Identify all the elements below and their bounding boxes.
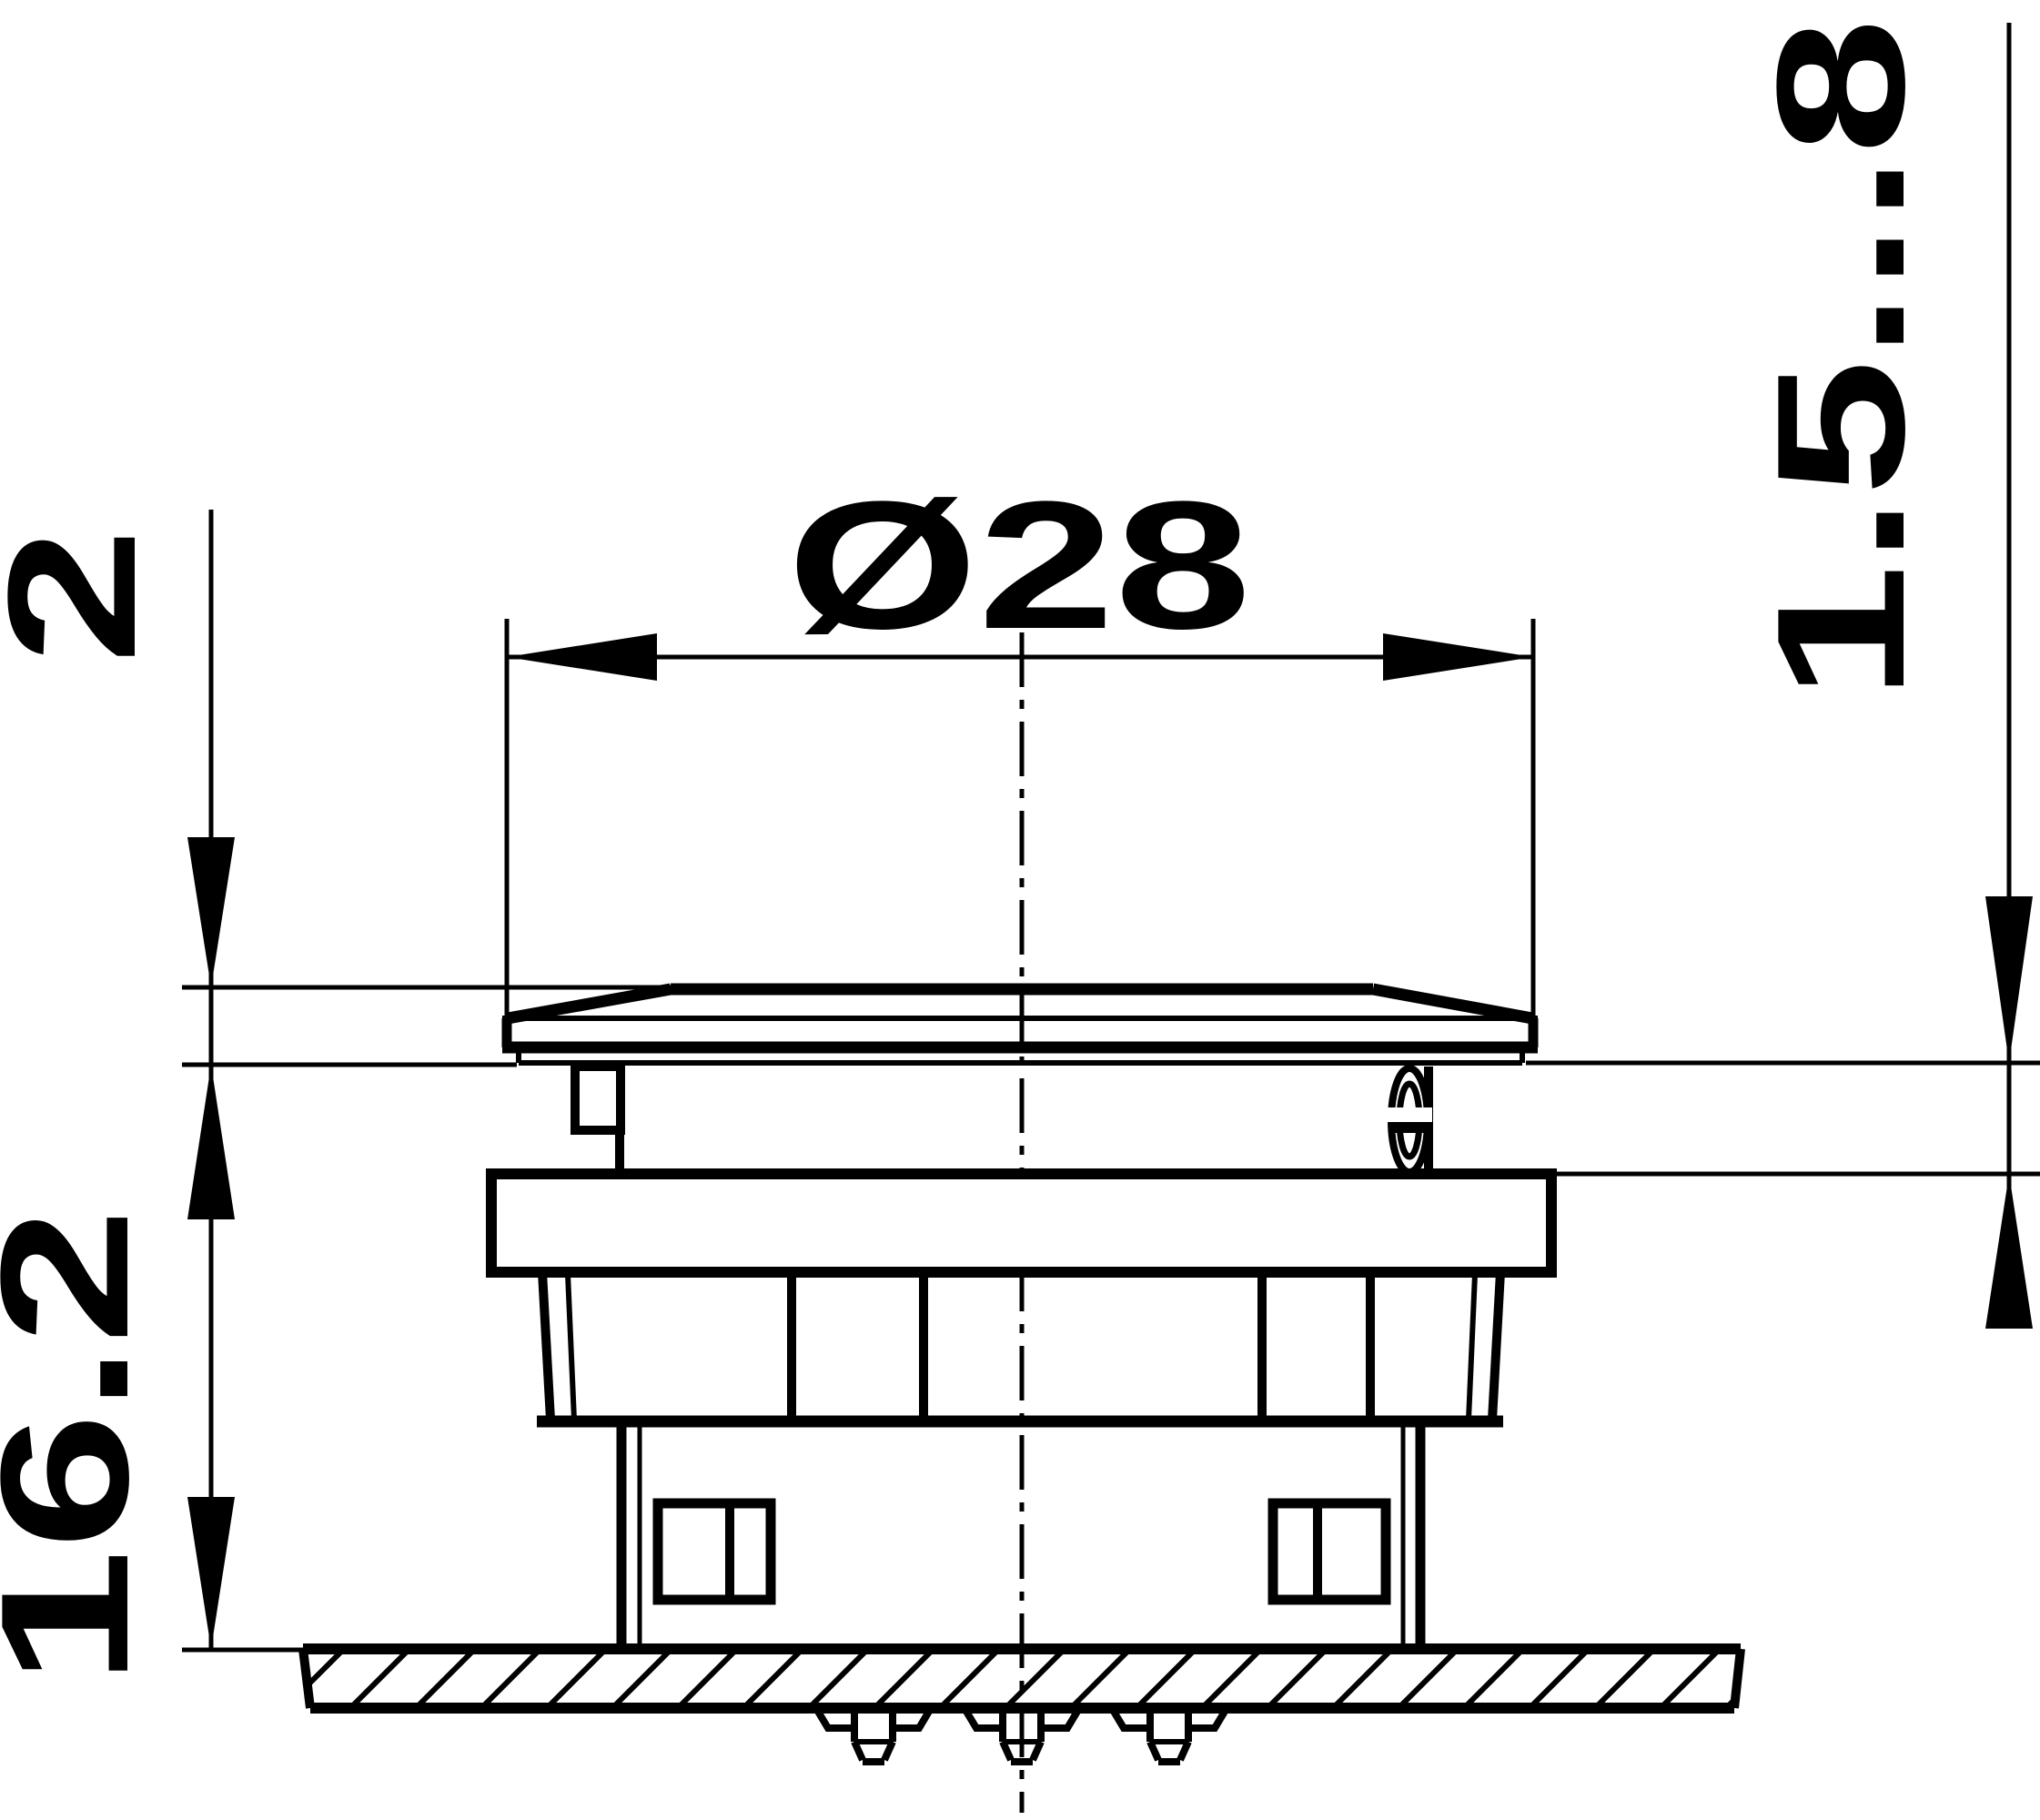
cap-top-slope-right [1373,989,1532,1018]
travel-label: 1.5...8 [1740,18,1943,702]
cap-height-arrow-top [187,837,235,987]
cap-height-label: 2 [0,528,174,664]
travel-arrow-bottom [1985,1174,2033,1329]
diameter-label: Ø28 [787,464,1251,667]
mounting-panel [273,1633,1801,1720]
spring-middle-winding [1389,1122,1429,1133]
contact-window-right [1273,1503,1386,1600]
spring-gap [1387,1107,1432,1122]
latch-tab [575,1067,621,1130]
travel-arrow-top [1985,896,2033,1063]
panel-right-end [1734,1649,1741,1708]
total-height-arrow-bottom [187,1497,235,1649]
collar-left-outer-edge [542,1272,550,1420]
cap-top-slope-left [508,989,671,1018]
actuator-body [575,1067,1432,1176]
contact-window-left [658,1503,771,1600]
height-above-panel-label: 16.2 [0,1208,167,1685]
diameter-arrow-left [507,633,657,681]
technical-drawing-page: Ø28 2 16.2 1.5...8 [0,0,2040,1820]
mounting-flange [491,1174,1551,1272]
diameter-arrow-right [1383,633,1533,681]
panel-left-end [303,1649,310,1708]
cap-height-arrow-bottom [187,1065,235,1219]
collar-left-inner-edge [568,1274,574,1420]
return-spring [1387,1068,1432,1172]
collar-right-outer-edge [1492,1272,1500,1420]
dimension-arrows [187,633,2033,1649]
solder-pin [817,1710,930,1762]
pushbutton-dimension-drawing: Ø28 2 16.2 1.5...8 [0,0,2040,1820]
collar-right-inner-edge [1469,1274,1475,1420]
solder-pin [1113,1710,1226,1762]
